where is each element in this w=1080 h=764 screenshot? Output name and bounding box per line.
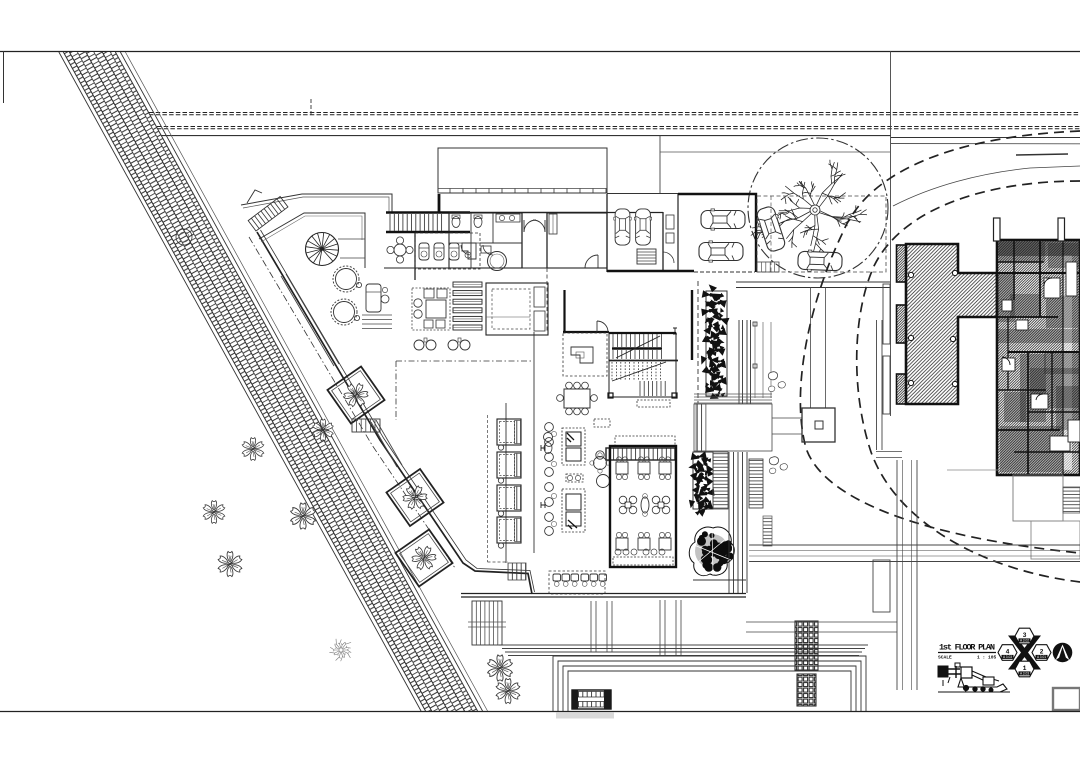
- svg-text:A 3.01: A 3.01: [1037, 655, 1046, 659]
- svg-text:1st FLOOR PLAN: 1st FLOOR PLAN: [939, 643, 995, 653]
- svg-text:SCALE: SCALE: [938, 655, 952, 661]
- svg-text:A 3.02: A 3.02: [1020, 639, 1029, 643]
- svg-text:A 3.03: A 3.03: [1003, 655, 1012, 659]
- svg-text:A 3.03: A 3.03: [1020, 672, 1029, 676]
- svg-text:1 : 105: 1 : 105: [977, 655, 997, 661]
